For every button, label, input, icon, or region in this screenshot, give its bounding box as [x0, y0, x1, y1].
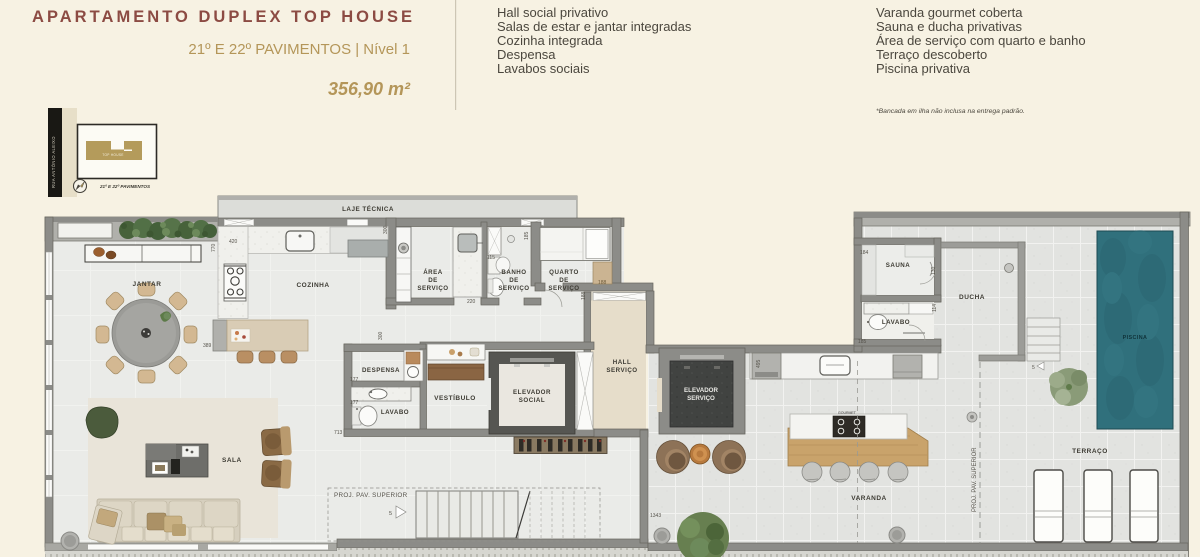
svg-text:356,90 m²: 356,90 m²	[328, 79, 411, 99]
svg-text:DE: DE	[428, 277, 438, 284]
svg-text:DE: DE	[509, 277, 519, 284]
svg-text:184: 184	[860, 250, 869, 256]
svg-text:TOP HOUSE: TOP HOUSE	[102, 153, 123, 157]
svg-text:PROJ. PAV. SUPERIOR: PROJ. PAV. SUPERIOR	[334, 492, 408, 499]
svg-text:177: 177	[350, 400, 359, 406]
svg-text:SERVIÇO: SERVIÇO	[498, 285, 529, 292]
svg-text:RUA ANTÔNIO ALEIXO: RUA ANTÔNIO ALEIXO	[51, 136, 56, 188]
svg-text:LAVABO: LAVABO	[882, 319, 910, 326]
svg-text:VESTÍBULO: VESTÍBULO	[434, 393, 476, 402]
svg-text:PISCINA: PISCINA	[1123, 335, 1148, 341]
svg-text:Lavabos sociais: Lavabos sociais	[497, 61, 590, 76]
svg-text:BANHO: BANHO	[501, 269, 526, 276]
svg-text:130: 130	[931, 266, 937, 275]
svg-text:5: 5	[1032, 365, 1035, 371]
svg-text:COZINHA: COZINHA	[296, 282, 329, 289]
svg-text:177: 177	[350, 377, 359, 383]
svg-text:300: 300	[378, 331, 384, 340]
svg-text:5: 5	[389, 511, 392, 517]
svg-text:1343: 1343	[650, 513, 661, 519]
svg-text:PROJ. PAV. SUPERIOR: PROJ. PAV. SUPERIOR	[972, 447, 978, 512]
svg-text:VARANDA: VARANDA	[851, 495, 887, 502]
svg-text:LAJE TÉCNICA: LAJE TÉCNICA	[342, 204, 394, 213]
svg-text:ELEVADOR: ELEVADOR	[513, 389, 551, 396]
svg-text:ÁREA: ÁREA	[423, 269, 443, 276]
svg-text:SERVIÇO: SERVIÇO	[417, 285, 448, 292]
svg-text:SAUNA: SAUNA	[886, 262, 911, 269]
svg-text:LAVABO: LAVABO	[381, 409, 409, 416]
svg-text:220: 220	[467, 299, 476, 305]
svg-text:Terraço descoberto: Terraço descoberto	[876, 47, 987, 62]
svg-text:389: 389	[203, 343, 212, 349]
svg-text:DE: DE	[559, 277, 569, 284]
svg-text:Salas de estar e jantar integr: Salas de estar e jantar integradas	[497, 19, 692, 34]
svg-text:Área de serviço com quarto e b: Área de serviço com quarto e banho	[876, 33, 1086, 48]
svg-text:SALA: SALA	[222, 457, 242, 464]
svg-text:Cozinha integrada: Cozinha integrada	[497, 33, 603, 48]
svg-text:SOCIAL: SOCIAL	[519, 397, 545, 404]
svg-text:SERVIÇO: SERVIÇO	[606, 367, 637, 374]
svg-text:SERVIÇO: SERVIÇO	[687, 395, 715, 402]
svg-text:188: 188	[581, 291, 587, 300]
svg-text:713: 713	[334, 430, 343, 436]
svg-text:Varanda gourmet coberta: Varanda gourmet coberta	[876, 5, 1023, 20]
svg-text:Hall social privativo: Hall social privativo	[497, 5, 608, 20]
svg-text:ELEVADOR: ELEVADOR	[684, 387, 718, 394]
svg-text:770: 770	[211, 243, 217, 252]
svg-text:Sauna e ducha privativas: Sauna e ducha privativas	[876, 19, 1022, 34]
svg-text:21º E 22º PAVIMENTOS: 21º E 22º PAVIMENTOS	[99, 184, 151, 189]
svg-text:185: 185	[524, 231, 530, 240]
svg-text:495: 495	[756, 359, 762, 368]
svg-text:420: 420	[229, 239, 238, 245]
svg-text:GOURMET: GOURMET	[838, 411, 857, 415]
svg-text:Despensa: Despensa	[497, 47, 556, 62]
svg-text:21º E 22º PAVIMENTOS | Nível 1: 21º E 22º PAVIMENTOS | Nível 1	[188, 41, 410, 58]
svg-text:TERRAÇO: TERRAÇO	[1072, 448, 1108, 455]
svg-text:115: 115	[487, 255, 495, 261]
svg-text:HALL: HALL	[613, 359, 632, 366]
svg-text:300: 300	[383, 225, 389, 234]
svg-text:185: 185	[858, 339, 867, 345]
svg-text:DESPENSA: DESPENSA	[362, 367, 400, 374]
svg-text:JANTAR: JANTAR	[133, 281, 162, 288]
svg-text:114: 114	[932, 304, 938, 312]
svg-text:Piscina privativa: Piscina privativa	[876, 61, 971, 76]
svg-text:SERVIÇO: SERVIÇO	[548, 285, 579, 292]
svg-text:188: 188	[598, 280, 607, 286]
svg-text:DUCHA: DUCHA	[959, 294, 985, 301]
svg-text:QUARTO: QUARTO	[549, 269, 579, 276]
svg-text:*Bancada em ilha não inclusa n: *Bancada em ilha não inclusa na entrega …	[876, 108, 1025, 115]
